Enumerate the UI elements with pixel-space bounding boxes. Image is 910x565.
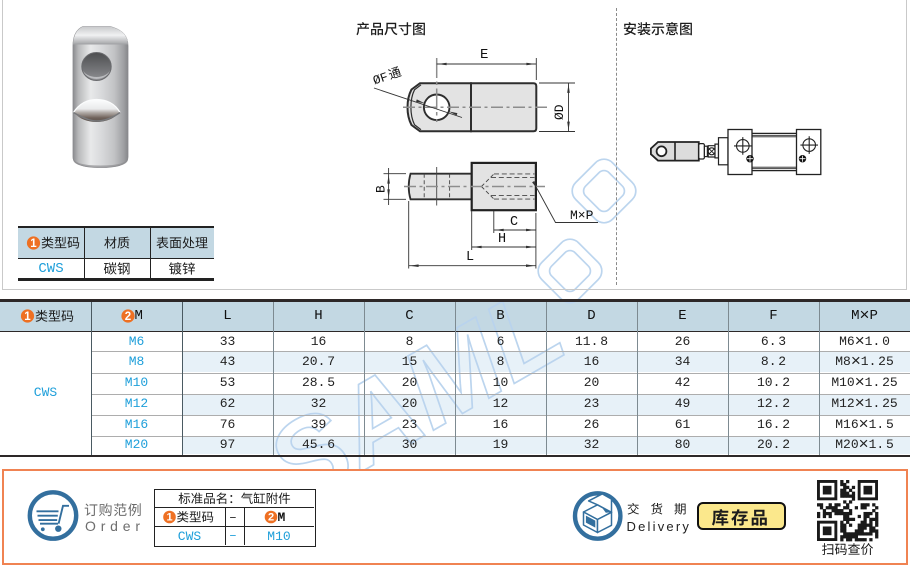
svg-text:ØF: ØF bbox=[371, 70, 390, 88]
svg-text:ØD: ØD bbox=[552, 104, 567, 120]
svg-text:B: B bbox=[374, 185, 389, 193]
